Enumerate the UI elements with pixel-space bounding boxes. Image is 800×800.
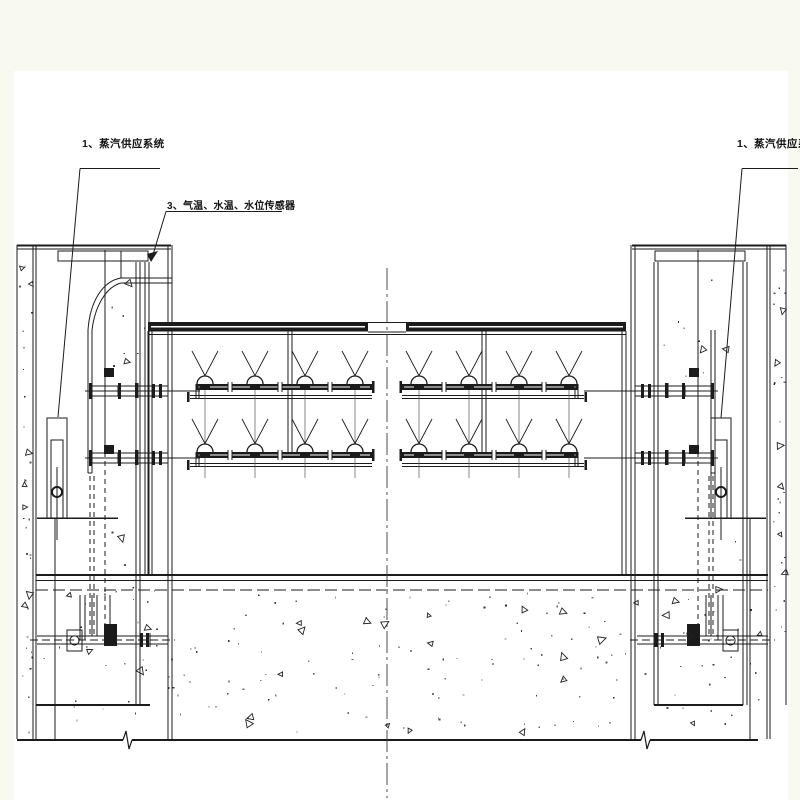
technical-drawing [0,0,800,800]
annotation-steam-supply-left: 1、蒸汽供应系统 [82,136,165,151]
annotation-sensors: 3、气温、水温、水位传感器 [167,197,295,212]
annotation-steam-supply-right: 1、蒸汽供应系统 [737,136,800,151]
cad-drawing-page: 1、蒸汽供应系统 3、气温、水温、水位传感器 1、蒸汽供应系统 [0,0,800,800]
